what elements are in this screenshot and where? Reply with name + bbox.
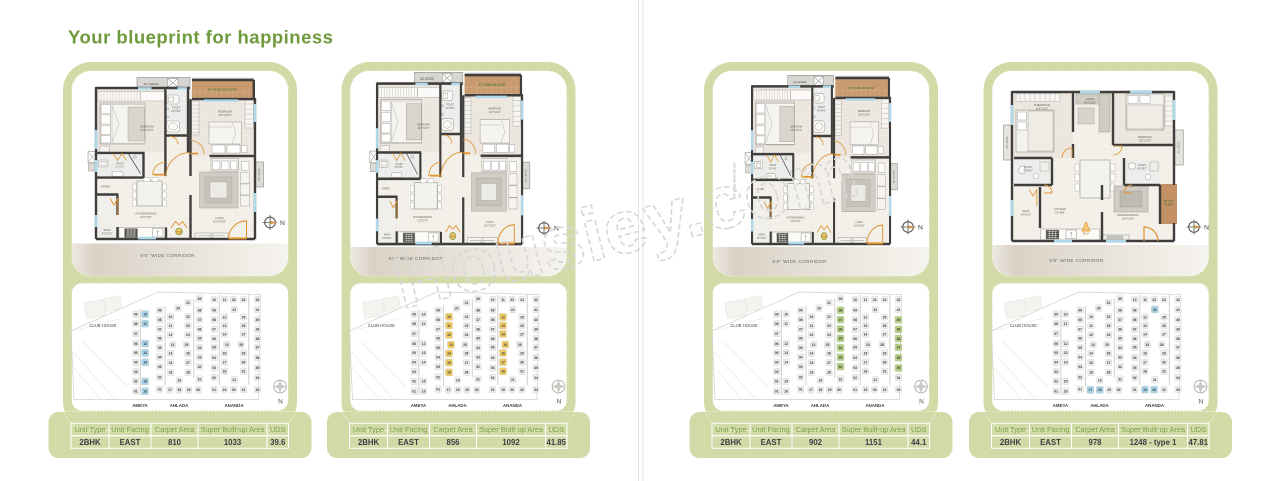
- svg-text:08: 08: [212, 318, 216, 322]
- svg-text:38: 38: [1118, 309, 1122, 313]
- svg-text:09: 09: [158, 309, 162, 313]
- svg-text:32: 32: [1118, 365, 1122, 369]
- svg-text:18: 18: [818, 388, 822, 392]
- svg-text:31: 31: [198, 377, 202, 381]
- svg-text:07: 07: [134, 332, 138, 336]
- svg-text:AHLADA: AHLADA: [1090, 403, 1109, 408]
- svg-text:35: 35: [256, 366, 260, 370]
- svg-text:UDS: UDS: [911, 425, 927, 434]
- svg-text:16'0"X10'0": 16'0"X10'0": [1122, 217, 1135, 220]
- svg-text:15: 15: [143, 380, 147, 384]
- svg-text:36: 36: [256, 356, 260, 360]
- svg-text:Unit Type: Unit Type: [353, 425, 384, 434]
- svg-text:40: 40: [1176, 318, 1180, 322]
- svg-text:41: 41: [256, 308, 260, 312]
- svg-text:01: 01: [436, 387, 440, 391]
- svg-text:04: 04: [1133, 356, 1137, 360]
- svg-text:24: 24: [883, 298, 887, 302]
- svg-text:1248 - type 1: 1248 - type 1: [1130, 438, 1177, 447]
- svg-text:AHLADA: AHLADA: [811, 403, 830, 408]
- svg-text:38: 38: [1176, 337, 1180, 341]
- svg-text:26: 26: [520, 324, 524, 328]
- svg-text:BEDROOM: BEDROOM: [140, 125, 153, 129]
- svg-text:6'6" WIDE CORRIDOR: 6'6" WIDE CORRIDOR: [1049, 258, 1104, 263]
- svg-text:10: 10: [143, 312, 147, 316]
- svg-text:13: 13: [1143, 324, 1147, 328]
- svg-text:13: 13: [143, 351, 147, 355]
- svg-text:37: 37: [476, 318, 480, 322]
- svg-text:2BHK: 2BHK: [720, 438, 742, 447]
- svg-text:09: 09: [1054, 312, 1058, 316]
- svg-text:23: 23: [873, 298, 877, 302]
- svg-text:23: 23: [232, 298, 236, 302]
- svg-text:07: 07: [799, 327, 803, 331]
- svg-text:14: 14: [810, 352, 814, 356]
- svg-text:Unit Facing: Unit Facing: [752, 425, 789, 434]
- svg-text:47.81: 47.81: [1188, 438, 1208, 447]
- svg-text:29: 29: [828, 388, 832, 392]
- svg-text:14: 14: [422, 361, 426, 365]
- svg-text:14: 14: [143, 361, 147, 365]
- svg-text:Carpet Area: Carpet Area: [796, 425, 836, 434]
- svg-text:01: 01: [1054, 389, 1058, 393]
- svg-text:856: 856: [446, 438, 460, 447]
- svg-text:28: 28: [239, 343, 243, 347]
- svg-text:19: 19: [1143, 388, 1147, 392]
- svg-text:25: 25: [242, 315, 246, 319]
- svg-text:01: 01: [412, 389, 416, 393]
- svg-text:25: 25: [1162, 315, 1166, 319]
- svg-text:06: 06: [799, 337, 803, 341]
- svg-text:35: 35: [1176, 366, 1180, 370]
- svg-text:06: 06: [491, 337, 495, 341]
- svg-text:22: 22: [1153, 308, 1157, 312]
- svg-text:40: 40: [897, 318, 901, 322]
- svg-text:16: 16: [422, 389, 426, 393]
- svg-text:24: 24: [186, 333, 190, 337]
- svg-text:34: 34: [476, 346, 480, 350]
- svg-text:29: 29: [1162, 351, 1166, 355]
- svg-text:11: 11: [1064, 322, 1068, 326]
- svg-text:33: 33: [897, 388, 901, 392]
- svg-text:07: 07: [1133, 328, 1137, 332]
- svg-text:03: 03: [853, 366, 857, 370]
- svg-text:28: 28: [1107, 371, 1111, 375]
- svg-text:25: 25: [826, 343, 830, 347]
- svg-text:01: 01: [1078, 387, 1082, 391]
- svg-text:02: 02: [1054, 380, 1058, 384]
- svg-text:20: 20: [510, 388, 514, 392]
- svg-text:03: 03: [212, 366, 216, 370]
- svg-text:UDS: UDS: [1190, 425, 1206, 434]
- svg-text:12: 12: [1064, 342, 1068, 346]
- svg-text:22: 22: [873, 308, 877, 312]
- svg-text:M.BEDROOM: M.BEDROOM: [1034, 103, 1050, 107]
- svg-text:1151: 1151: [865, 438, 883, 447]
- svg-text:38: 38: [256, 337, 260, 341]
- svg-text:33: 33: [839, 355, 843, 359]
- svg-text:31: 31: [883, 370, 887, 374]
- svg-text:16: 16: [1089, 371, 1093, 375]
- svg-text:02: 02: [412, 380, 416, 384]
- svg-text:37: 37: [1176, 346, 1180, 350]
- svg-text:37: 37: [534, 346, 538, 350]
- svg-text:18: 18: [501, 370, 505, 374]
- svg-text:15: 15: [447, 361, 451, 365]
- svg-text:18: 18: [223, 370, 227, 374]
- svg-text:03: 03: [491, 366, 495, 370]
- svg-text:12: 12: [1143, 315, 1147, 319]
- svg-text:34: 34: [256, 376, 260, 380]
- svg-text:07: 07: [412, 332, 416, 336]
- svg-text:32: 32: [476, 365, 480, 369]
- svg-text:01: 01: [212, 388, 216, 392]
- svg-text:32: 32: [242, 388, 246, 392]
- svg-text:35: 35: [897, 366, 901, 370]
- svg-text:31: 31: [476, 377, 480, 381]
- svg-text:12'0"X10'0": 12'0"X10'0": [140, 128, 153, 132]
- svg-text:17: 17: [1089, 388, 1093, 392]
- svg-text:EAST: EAST: [398, 438, 419, 447]
- svg-text:29: 29: [242, 351, 246, 355]
- svg-text:03: 03: [1054, 370, 1058, 374]
- svg-text:15: 15: [1089, 361, 1093, 365]
- svg-text:09: 09: [212, 308, 216, 312]
- svg-text:36: 36: [897, 356, 901, 360]
- svg-text:08: 08: [1054, 322, 1058, 326]
- svg-text:17: 17: [809, 388, 813, 392]
- svg-text:7'0"X5'0": 7'0"X5'0": [1023, 169, 1033, 172]
- svg-text:06: 06: [212, 337, 216, 341]
- svg-text:07: 07: [1054, 332, 1058, 336]
- svg-text:AC LEDGE: AC LEDGE: [1006, 136, 1009, 148]
- svg-text:05: 05: [491, 346, 495, 350]
- svg-text:40: 40: [534, 318, 538, 322]
- svg-text:21: 21: [511, 378, 515, 382]
- svg-text:05: 05: [1054, 351, 1058, 355]
- svg-text:04: 04: [158, 355, 162, 359]
- svg-text:36: 36: [534, 356, 538, 360]
- svg-text:41.85: 41.85: [546, 438, 566, 447]
- svg-text:24: 24: [1107, 333, 1111, 337]
- svg-text:10: 10: [784, 312, 788, 316]
- svg-text:33: 33: [198, 355, 202, 359]
- svg-text:05: 05: [134, 351, 138, 355]
- svg-text:13: 13: [171, 343, 175, 347]
- svg-text:AMEYA: AMEYA: [773, 403, 789, 408]
- svg-text:19: 19: [177, 378, 181, 382]
- svg-text:02: 02: [212, 376, 216, 380]
- svg-text:04: 04: [491, 356, 495, 360]
- svg-text:11'6"X10'0": 11'6"X10'0": [1035, 106, 1048, 110]
- svg-text:Super Built-up Area: Super Built-up Area: [200, 425, 265, 434]
- svg-text:TOILET: TOILET: [116, 163, 125, 166]
- svg-text:Your blueprint for happiness: Your blueprint for happiness: [68, 27, 333, 48]
- svg-text:01: 01: [134, 389, 138, 393]
- svg-text:22: 22: [511, 308, 515, 312]
- svg-text:30: 30: [1162, 360, 1166, 364]
- svg-text:01: 01: [799, 387, 803, 391]
- svg-text:03: 03: [775, 370, 779, 374]
- svg-text:16: 16: [223, 351, 227, 355]
- svg-text:25: 25: [185, 343, 189, 347]
- svg-text:20: 20: [1152, 388, 1156, 392]
- svg-text:21: 21: [1153, 378, 1157, 382]
- svg-text:42: 42: [897, 298, 901, 302]
- svg-text:19: 19: [1098, 378, 1102, 382]
- svg-text:24: 24: [242, 298, 246, 302]
- svg-text:32: 32: [1162, 388, 1166, 392]
- svg-text:27: 27: [465, 361, 469, 365]
- svg-text:02: 02: [1133, 376, 1137, 380]
- svg-text:16: 16: [1064, 389, 1068, 393]
- svg-text:28: 28: [1160, 343, 1164, 347]
- svg-text:11: 11: [864, 298, 868, 302]
- svg-text:12: 12: [864, 315, 868, 319]
- svg-text:33: 33: [476, 355, 480, 359]
- svg-text:31: 31: [520, 370, 524, 374]
- svg-text:41: 41: [897, 308, 901, 312]
- svg-text:17: 17: [447, 388, 451, 392]
- svg-text:30: 30: [1117, 388, 1121, 392]
- svg-text:09: 09: [853, 308, 857, 312]
- svg-text:N: N: [557, 399, 562, 406]
- svg-text:24: 24: [827, 333, 831, 337]
- svg-text:CLUB HOUSE: CLUB HOUSE: [89, 323, 116, 328]
- svg-text:12: 12: [501, 315, 505, 319]
- svg-text:24: 24: [465, 333, 469, 337]
- svg-text:03: 03: [134, 370, 138, 374]
- svg-text:25: 25: [883, 315, 887, 319]
- svg-text:26: 26: [827, 352, 831, 356]
- svg-text:06: 06: [1133, 337, 1137, 341]
- svg-text:08: 08: [775, 322, 779, 326]
- svg-text:09: 09: [775, 312, 779, 316]
- svg-text:39: 39: [1176, 328, 1180, 332]
- svg-text:34: 34: [1176, 376, 1180, 380]
- svg-text:15: 15: [503, 343, 507, 347]
- svg-text:AHLADA: AHLADA: [170, 403, 189, 408]
- svg-text:29: 29: [1107, 388, 1111, 392]
- svg-text:05: 05: [799, 346, 803, 350]
- svg-text:22: 22: [1107, 315, 1111, 319]
- svg-text:13: 13: [223, 324, 227, 328]
- svg-text:14: 14: [501, 332, 505, 336]
- svg-text:05: 05: [212, 346, 216, 350]
- svg-text:04: 04: [1054, 361, 1058, 365]
- svg-text:10: 10: [1064, 312, 1068, 316]
- svg-text:24: 24: [1162, 298, 1166, 302]
- svg-text:39: 39: [897, 328, 901, 332]
- svg-text:8'0"X5'0": 8'0"X5'0": [1137, 167, 1147, 170]
- svg-text:N: N: [1204, 225, 1209, 232]
- svg-text:19: 19: [864, 388, 868, 392]
- svg-text:33: 33: [534, 388, 538, 392]
- svg-text:Carpet Area: Carpet Area: [433, 425, 473, 434]
- svg-text:2BHK: 2BHK: [79, 438, 101, 447]
- svg-text:20: 20: [817, 306, 821, 310]
- svg-text:15: 15: [810, 361, 814, 365]
- svg-text:27: 27: [1107, 361, 1111, 365]
- svg-text:09: 09: [134, 312, 138, 316]
- svg-text:19: 19: [818, 378, 822, 382]
- svg-text:14: 14: [1089, 352, 1093, 356]
- svg-text:36: 36: [476, 327, 480, 331]
- svg-text:AHLADA: AHLADA: [448, 403, 467, 408]
- svg-text:02: 02: [436, 375, 440, 379]
- svg-text:23: 23: [827, 324, 831, 328]
- svg-text:08: 08: [436, 318, 440, 322]
- svg-text:11: 11: [223, 298, 227, 302]
- svg-text:06: 06: [412, 342, 416, 346]
- svg-text:27: 27: [186, 361, 190, 365]
- svg-text:29: 29: [187, 388, 191, 392]
- svg-text:38: 38: [534, 337, 538, 341]
- svg-text:38: 38: [476, 309, 480, 313]
- svg-text:11: 11: [1143, 298, 1147, 302]
- svg-text:12'0"X10'0": 12'0"X10'0": [1138, 138, 1151, 142]
- svg-text:08: 08: [799, 318, 803, 322]
- svg-text:Unit Type: Unit Type: [995, 425, 1026, 434]
- svg-text:37: 37: [839, 318, 843, 322]
- svg-text:29: 29: [883, 351, 887, 355]
- svg-text:26: 26: [1162, 324, 1166, 328]
- svg-text:27: 27: [242, 332, 246, 336]
- svg-text:08: 08: [134, 322, 138, 326]
- svg-text:2BHK: 2BHK: [358, 438, 380, 447]
- svg-text:07: 07: [158, 327, 162, 331]
- svg-text:17: 17: [864, 360, 868, 364]
- svg-text:16: 16: [864, 351, 868, 355]
- svg-text:34: 34: [534, 376, 538, 380]
- svg-text:2BHK: 2BHK: [1000, 438, 1022, 447]
- svg-text:20: 20: [873, 388, 877, 392]
- svg-text:29: 29: [520, 351, 524, 355]
- svg-text:21: 21: [873, 378, 877, 382]
- svg-text:35: 35: [839, 337, 843, 341]
- svg-text:07: 07: [491, 328, 495, 332]
- svg-text:Super Built-up Area: Super Built-up Area: [479, 425, 544, 434]
- svg-text:35: 35: [198, 337, 202, 341]
- svg-text:30: 30: [475, 388, 479, 392]
- svg-text:39: 39: [839, 297, 843, 301]
- svg-text:21: 21: [186, 301, 190, 305]
- svg-text:14: 14: [447, 352, 451, 356]
- svg-text:AMEYA: AMEYA: [411, 403, 427, 408]
- svg-text:13: 13: [784, 351, 788, 355]
- svg-text:EAST: EAST: [761, 438, 782, 447]
- svg-text:04: 04: [1078, 355, 1082, 359]
- svg-text:02: 02: [491, 376, 495, 380]
- svg-text:13: 13: [501, 324, 505, 328]
- svg-text:34: 34: [839, 346, 843, 350]
- svg-text:01: 01: [775, 389, 779, 393]
- svg-text:07: 07: [212, 328, 216, 332]
- svg-text:03: 03: [1133, 366, 1137, 370]
- svg-text:39: 39: [198, 297, 202, 301]
- svg-text:28: 28: [518, 343, 522, 347]
- svg-text:03: 03: [799, 365, 803, 369]
- svg-text:31: 31: [1118, 377, 1122, 381]
- svg-text:13: 13: [864, 324, 868, 328]
- svg-text:26: 26: [186, 352, 190, 356]
- svg-text:04: 04: [436, 355, 440, 359]
- svg-text:PUJA: PUJA: [1083, 233, 1090, 236]
- svg-text:6'0"X4'0": 6'0"X4'0": [116, 167, 125, 169]
- svg-text:N: N: [918, 225, 923, 232]
- svg-text:16: 16: [169, 371, 173, 375]
- svg-text:AC LEDGE: AC LEDGE: [258, 168, 261, 180]
- svg-text:14: 14: [169, 352, 173, 356]
- svg-text:14: 14: [784, 361, 788, 365]
- svg-text:Carpet Area: Carpet Area: [1075, 425, 1115, 434]
- svg-text:15: 15: [866, 343, 870, 347]
- svg-text:12: 12: [1089, 333, 1093, 337]
- svg-text:23: 23: [186, 324, 190, 328]
- svg-text:21: 21: [1107, 301, 1111, 305]
- svg-text:28: 28: [827, 371, 831, 375]
- svg-text:06: 06: [436, 337, 440, 341]
- svg-text:Unit Type: Unit Type: [74, 425, 105, 434]
- svg-text:3'0"X10'6": 3'0"X10'6": [1021, 213, 1032, 216]
- svg-text:02: 02: [1078, 375, 1082, 379]
- svg-text:28: 28: [465, 371, 469, 375]
- svg-text:12: 12: [447, 333, 451, 337]
- svg-text:09: 09: [799, 309, 803, 313]
- svg-text:31: 31: [1162, 370, 1166, 374]
- svg-text:N: N: [280, 220, 285, 227]
- svg-text:25: 25: [520, 315, 524, 319]
- svg-text:28: 28: [186, 371, 190, 375]
- svg-text:AC LEDGE: AC LEDGE: [143, 82, 158, 86]
- svg-text:39: 39: [534, 328, 538, 332]
- svg-text:14: 14: [1143, 332, 1147, 336]
- svg-text:ANANDA: ANANDA: [224, 403, 244, 408]
- svg-text:15: 15: [422, 380, 426, 384]
- svg-text:CLUB HOUSE: CLUB HOUSE: [1010, 323, 1037, 328]
- svg-text:05: 05: [1133, 346, 1137, 350]
- svg-text:23: 23: [1107, 324, 1111, 328]
- svg-text:24: 24: [520, 298, 524, 302]
- svg-text:18: 18: [456, 388, 460, 392]
- svg-text:03: 03: [436, 365, 440, 369]
- svg-text:30: 30: [242, 360, 246, 364]
- svg-text:N: N: [1199, 399, 1204, 406]
- svg-text:N: N: [919, 399, 924, 406]
- svg-text:Unit Type: Unit Type: [715, 425, 746, 434]
- svg-text:07: 07: [436, 327, 440, 331]
- svg-text:37: 37: [897, 346, 901, 350]
- svg-text:18: 18: [1098, 388, 1102, 392]
- svg-text:27: 27: [520, 332, 524, 336]
- svg-text:10: 10: [169, 315, 173, 319]
- svg-text:27: 27: [827, 361, 831, 365]
- svg-text:15: 15: [169, 361, 173, 365]
- svg-text:05: 05: [412, 351, 416, 355]
- svg-text:30: 30: [883, 360, 887, 364]
- svg-text:25: 25: [463, 343, 467, 347]
- svg-text:13: 13: [449, 343, 453, 347]
- svg-text:12: 12: [169, 333, 173, 337]
- svg-text:11'0"X10'0": 11'0"X10'0": [218, 113, 231, 117]
- svg-text:4'0"X9'0": 4'0"X9'0": [1164, 204, 1174, 207]
- svg-text:01: 01: [853, 388, 857, 392]
- svg-text:35: 35: [1118, 337, 1122, 341]
- svg-text:07: 07: [1078, 327, 1082, 331]
- svg-text:02: 02: [158, 375, 162, 379]
- svg-text:6'6" WIDE CORRIDOR: 6'6" WIDE CORRIDOR: [772, 259, 827, 264]
- svg-text:22: 22: [232, 308, 236, 312]
